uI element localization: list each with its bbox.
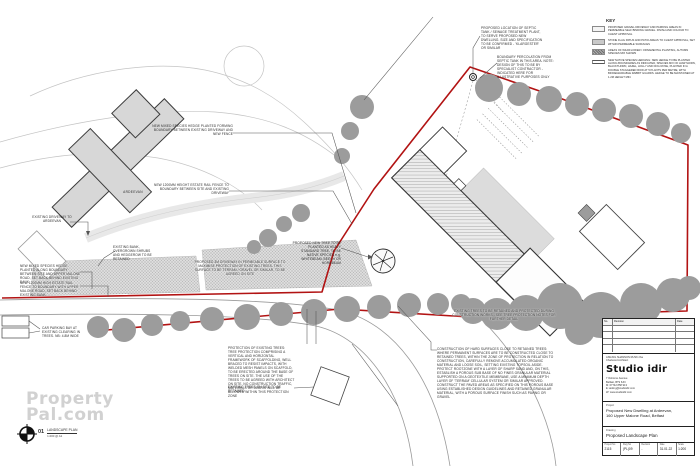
drawing-scale-note: 01 LANDSCAPE PLAN 1:200 @ A1 — [38, 428, 77, 438]
north-target-icon — [16, 423, 38, 445]
architect-qualification: Chartered Architect — [606, 359, 691, 362]
annotation-new-driveway: PROPOSED 3M DRIVEWAY IN PERMEABLE SURFAC… — [192, 260, 288, 276]
drawing-title: Proposed Landscape Plan — [606, 433, 691, 438]
drawing-label: Drawing — [606, 429, 691, 432]
propertypal-watermark: Property Pal.com — [26, 392, 114, 423]
annotation-car-parking: CAR PARKING BAY AT EXISTING CLEARING IN … — [42, 326, 90, 338]
drawing-section: Drawing Proposed Landscape Plan — [603, 427, 694, 443]
stone-flags-swatch-icon — [592, 39, 605, 45]
hedge-swatch-icon — [592, 60, 605, 64]
meta-scale: Scale 1:200 — [677, 443, 694, 456]
annotation-fence-driveway: NEW 1200MM HEIGHT ESTATE RAIL FENCE TO B… — [150, 183, 229, 195]
annotation-trees-boundary: EXISTING TREES TO BE RETAINED AND PROTEC… — [452, 309, 556, 321]
annotation-existing-bank: EXISTING BANK, OVERGROWN SHRUBS AND HEDG… — [113, 245, 153, 261]
meta-date: Date 31.01.22 — [658, 443, 676, 456]
studio-idir-logo: Studio idir — [606, 364, 691, 375]
project-section: Project Proposed New Dwelling at Ardeeva… — [603, 402, 694, 427]
garden-circle — [224, 46, 264, 86]
label-ardeevan-house: ARDEEVAN — [116, 190, 150, 194]
detail-number: 01 — [38, 429, 44, 435]
proposed-tree-symbol — [371, 249, 395, 273]
annotation-septic-tank: PROPOSED LOCATION OF SEPTIC TANK / SEWAG… — [481, 26, 543, 50]
drawing-meta-row: Project No 2115 Dwg No (PL)09 Revision -… — [603, 443, 694, 456]
tree-protection-detail — [311, 367, 349, 405]
percolation-area — [477, 97, 539, 159]
septic-tank-symbol — [470, 74, 477, 81]
annotation-new-tree: PROPOSED NEW TREE TO BE PLANTED AS HEAVY… — [292, 241, 341, 265]
title-block: No. Revision Date AISLING SHANNON RUSK r… — [602, 318, 695, 456]
outbuilding-right — [570, 195, 645, 270]
meta-dwg-no: Dwg No (PL)09 — [621, 443, 639, 456]
key-legend: KEY PROPOSED GRAVEL DRIVEWAY AND PARKING… — [592, 18, 698, 82]
ornamental-planting-swatch-icon — [592, 49, 605, 55]
rev-col-date: Date — [676, 319, 694, 325]
key-item-gravel: PROPOSED GRAVEL DRIVEWAY AND PARKING ARE… — [592, 26, 698, 36]
annotation-hedge-driveway: NEW MIXED SPECIES HEDGE PLANTED FORMING … — [152, 124, 233, 136]
revision-table: No. Revision Date — [603, 319, 694, 354]
architect-info: AISLING SHANNON RUSK riba Chartered Arch… — [603, 354, 694, 402]
meta-revision: Revision - — [640, 443, 658, 456]
annotation-existing-driveway: EXISTING DRIVEWAY TO ARDEEVAN — [30, 215, 74, 223]
car-parking-bays — [2, 316, 29, 338]
drawing-sheet: NEW MIXED SPECIES HEDGE PLANTED FORMING … — [0, 0, 700, 466]
annotation-fence-road: NEW 1200MM HIGH ESTATE RAIL FENCE TO BOU… — [20, 281, 82, 297]
detail-title: LANDSCAPE PLAN — [47, 428, 77, 434]
project-title-line2: 160 Upper Malone Road, Belfast — [606, 413, 691, 418]
gravel-swatch-icon — [592, 26, 605, 32]
key-item-hedge: NEW NATIVE SPECIES HEDGING: NEW HEDGE TO… — [592, 59, 698, 79]
rev-col-no: No. — [603, 319, 613, 325]
annotation-percolation: BOUNDARY PERCOLATION FROM SEPTIC TANK IN… — [497, 55, 555, 79]
project-label: Project — [606, 404, 691, 407]
architect-website: W: www.studioidir.com — [606, 391, 691, 394]
annotation-hard-surfaces: CONSTRUCTION OF HARD SURFACES CLOSE TO R… — [437, 347, 555, 399]
rev-col-revision: Revision — [613, 319, 676, 325]
detail-scale: 1:200 @ A1 — [47, 434, 77, 438]
key-item-flags: STONE FLAG PATHS AND PATIO AREAS TO CLIE… — [592, 39, 698, 46]
key-title: KEY — [606, 18, 698, 23]
annotation-trees-retained: EXISTING TREES ON SITE TO BE RETAINED — [228, 385, 294, 393]
meta-project-no: Project No 2115 — [603, 443, 621, 456]
key-item-planting: AREAS OF WILDFLOWER / ORNAMENTAL PLANTIN… — [592, 49, 698, 56]
